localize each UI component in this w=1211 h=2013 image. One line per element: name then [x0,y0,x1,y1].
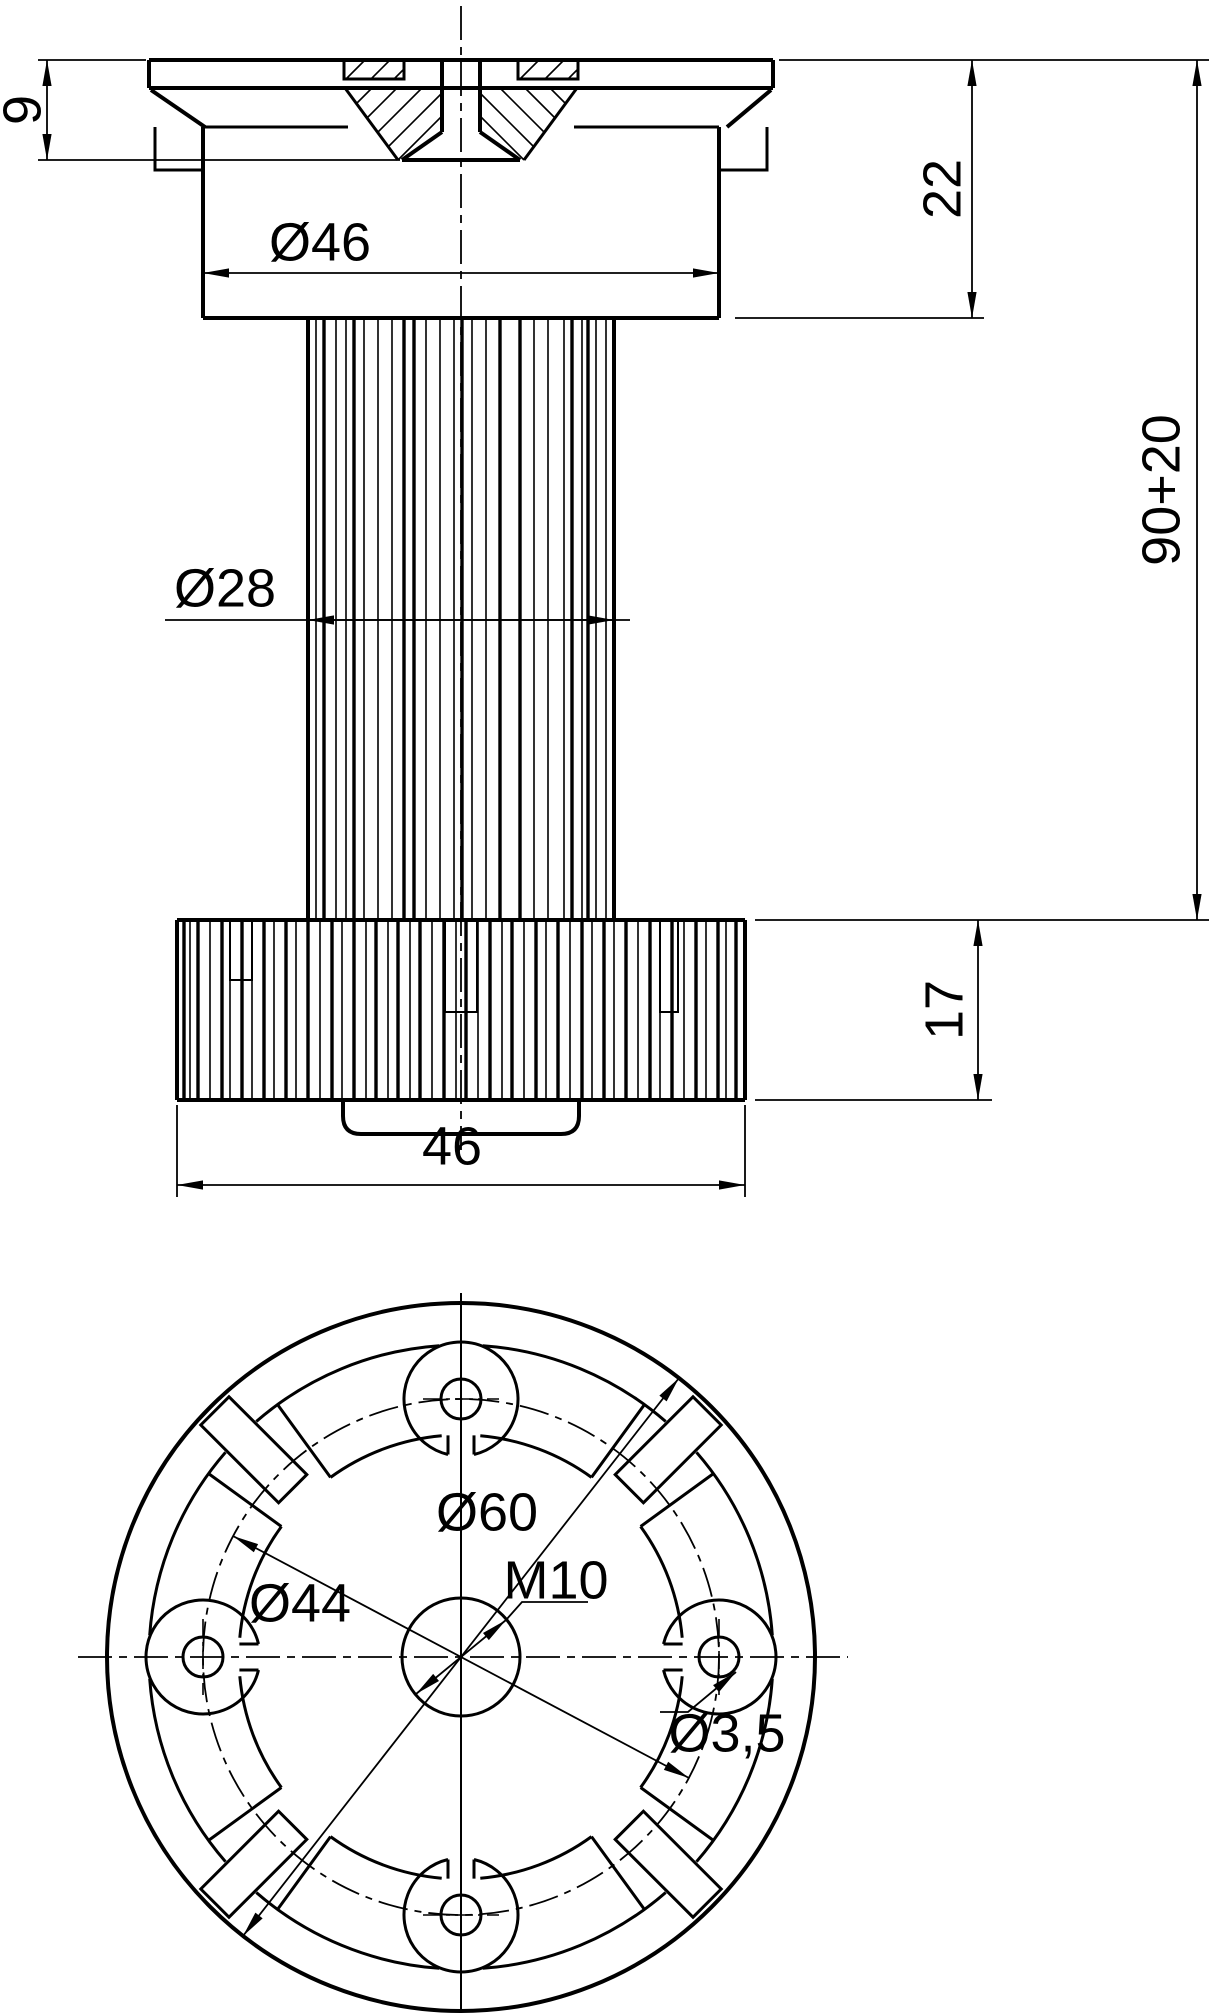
dim-collar-height-label: 22 [912,159,972,219]
dim-overall-height-label: 90+20 [1131,414,1191,566]
dim-column-diameter-label: Ø28 [174,558,276,618]
dim-center-thread-label: M10 [503,1550,608,1610]
base-right-slot [660,922,678,1012]
bottom-view: Ø60 Ø44 M10 Ø3,5 [78,1293,848,2013]
dim-collar-diameter-label: Ø46 [269,212,371,272]
section-hatching [346,60,578,160]
dim-base-width-label: 46 [422,1116,482,1176]
technical-drawing-page: 9 Ø46 22 90+20 Ø28 17 46 [0,0,1211,2013]
dim-bolt-circle-label: Ø44 [249,1573,351,1633]
technical-drawing: 9 Ø46 22 90+20 Ø28 17 46 [0,0,1211,2013]
dim-outer-diameter-label: Ø60 [436,1482,538,1542]
dim-flange-thickness-label: 9 [0,95,52,125]
side-view: 9 Ø46 22 90+20 Ø28 17 46 [0,6,1209,1197]
splined-column [308,318,614,920]
dim-screw-hole-diameter-label: Ø3,5 [668,1703,785,1763]
dim-base-height-label: 17 [914,980,974,1040]
